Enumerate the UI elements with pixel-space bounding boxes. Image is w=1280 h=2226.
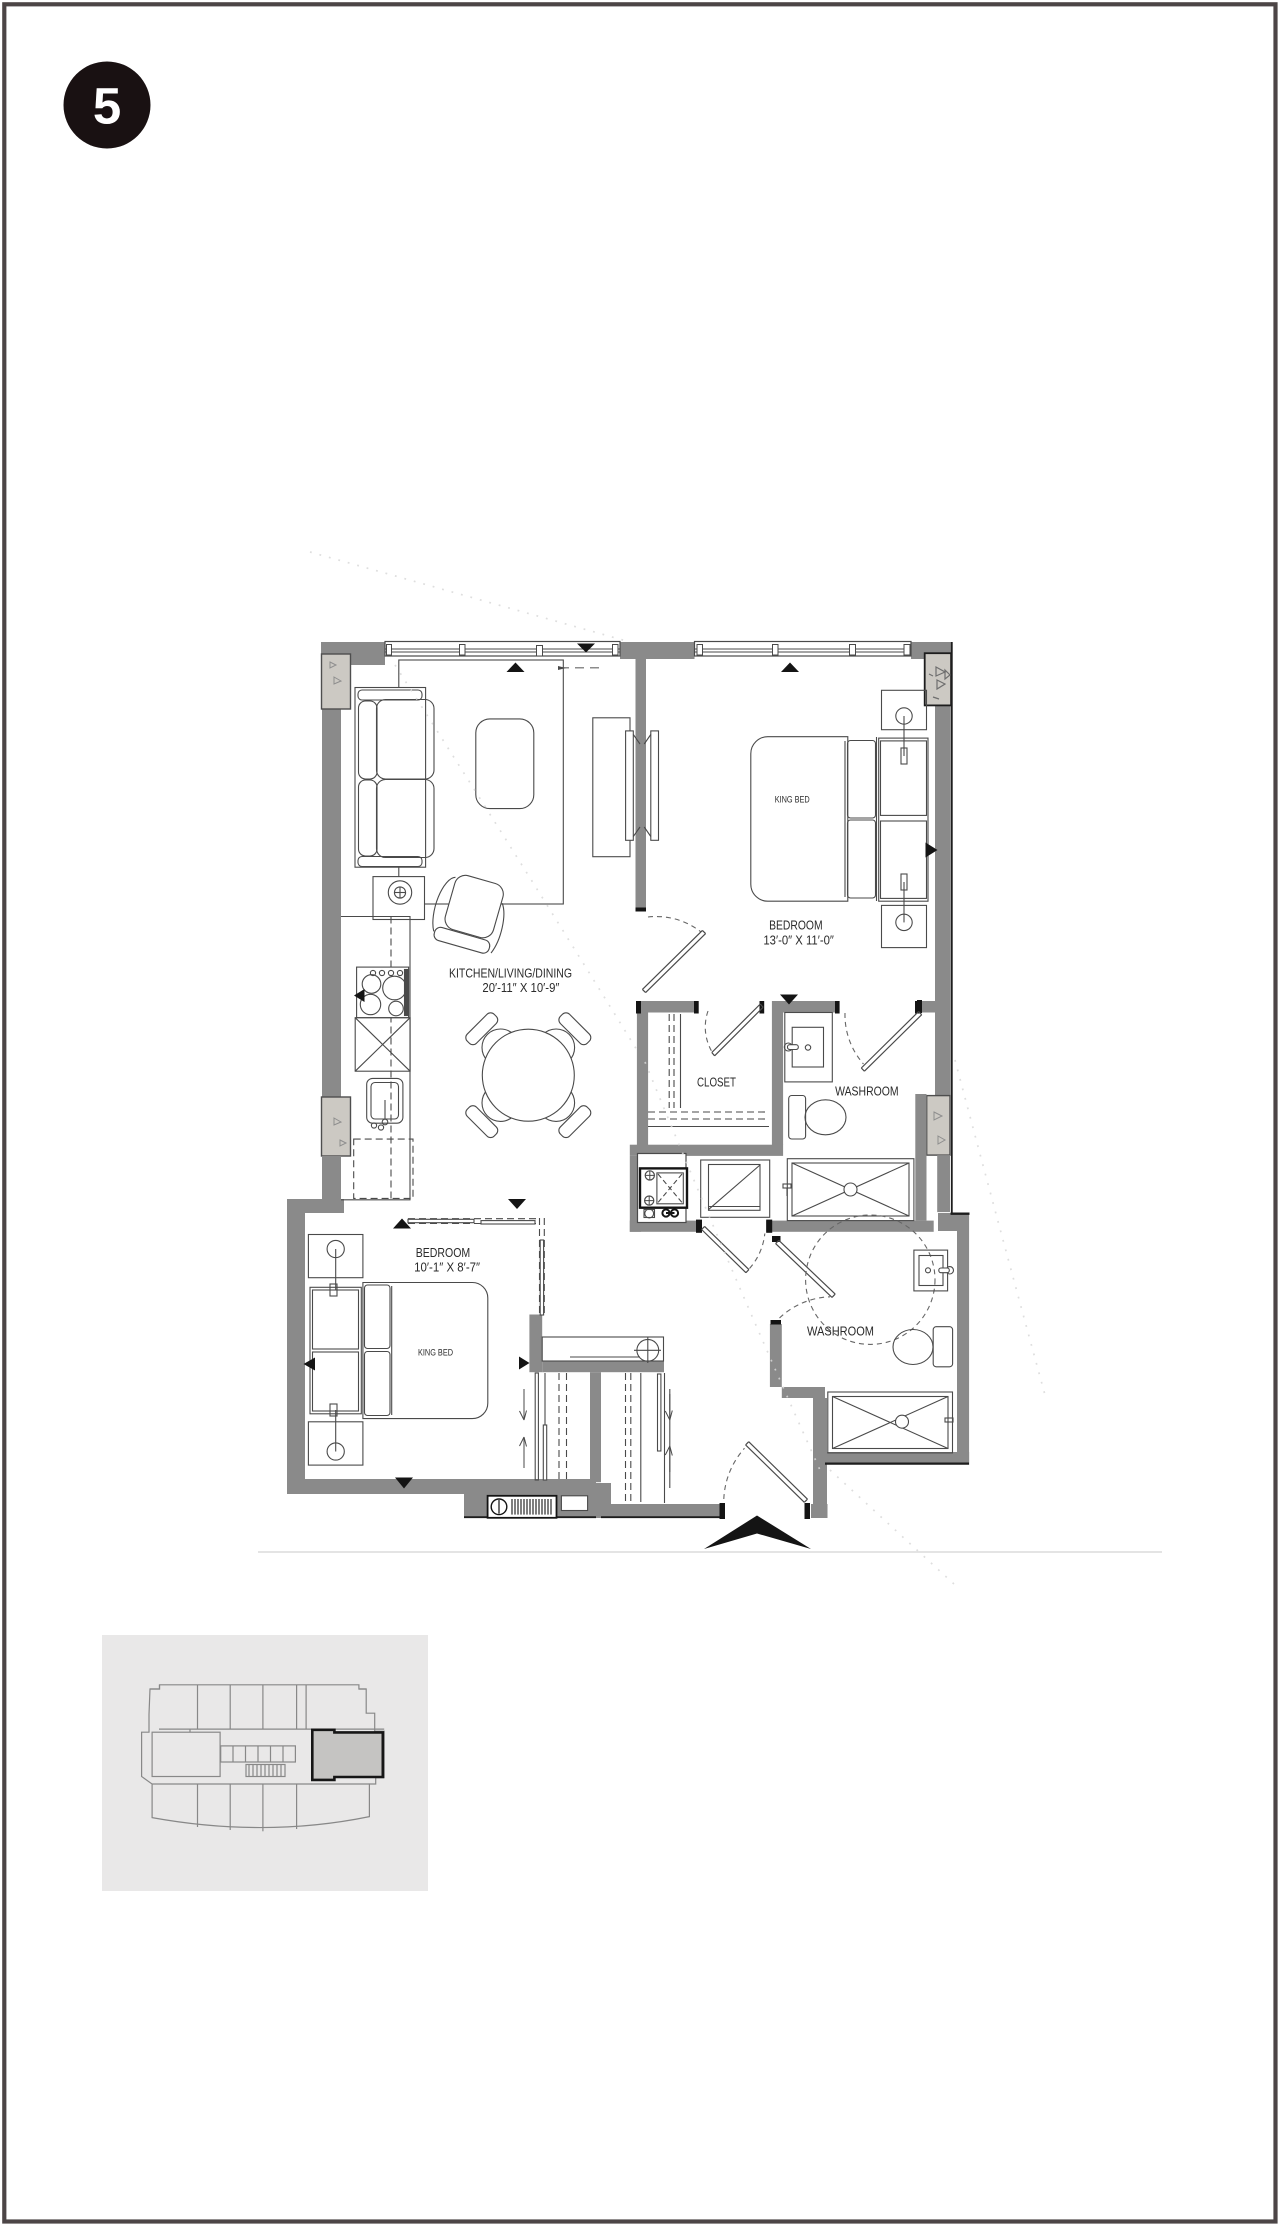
svg-text:CLOSET: CLOSET: [697, 1074, 736, 1089]
svg-text:BEDROOM: BEDROOM: [769, 917, 823, 932]
svg-text:20′-11″ X 10′-9″: 20′-11″ X 10′-9″: [482, 980, 559, 995]
svg-text:BEDROOM: BEDROOM: [416, 1245, 471, 1260]
svg-text:WASHROOM: WASHROOM: [807, 1324, 874, 1339]
svg-text:5: 5: [93, 78, 121, 135]
svg-text:KING BED: KING BED: [775, 794, 810, 805]
svg-text:KING BED: KING BED: [418, 1347, 453, 1358]
svg-text:10′-1″ X 8′-7″: 10′-1″ X 8′-7″: [414, 1259, 480, 1274]
svg-text:13′-0″ X 11′-0″: 13′-0″ X 11′-0″: [763, 932, 834, 947]
svg-text:KITCHEN/LIVING/DINING: KITCHEN/LIVING/DINING: [449, 966, 572, 981]
svg-text:WASHROOM: WASHROOM: [835, 1083, 899, 1098]
